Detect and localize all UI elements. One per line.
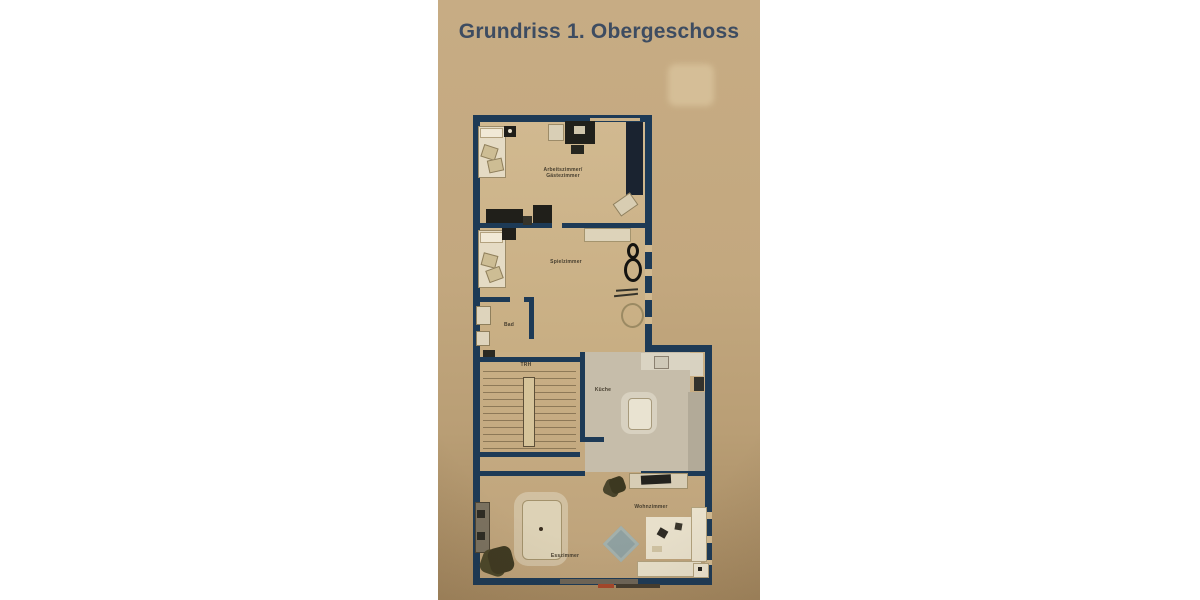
room-label-kueche: Küche <box>595 387 611 393</box>
figure-eight-bottom-ring <box>624 258 642 282</box>
floorplan-photo: Grundriss 1. Obergeschoss <box>438 0 760 600</box>
tv-icon <box>641 474 671 485</box>
cabinet-icon <box>548 124 564 141</box>
bed-pillow-icon <box>480 232 503 243</box>
kitchen-tile-strip <box>688 392 705 472</box>
stair-rail-icon <box>523 377 535 447</box>
plant-icon <box>604 477 626 499</box>
shelf-icon <box>584 228 631 242</box>
bed-pillow-icon <box>480 128 503 138</box>
coffee-table-item-icon <box>652 546 662 552</box>
nightstand-icon <box>502 228 516 240</box>
pencil-icon <box>616 288 638 292</box>
toilet-icon <box>476 331 490 346</box>
room-label-line: Gästezimmer <box>544 173 583 179</box>
sideboard-detail-icon <box>477 532 485 540</box>
kitchen-sink-icon <box>654 356 669 369</box>
room-label-spielzimmer: Spielzimmer <box>550 259 582 265</box>
wall-kitchen-left <box>580 352 585 442</box>
watermark-text <box>616 584 660 588</box>
page-title: Grundriss 1. Obergeschoss <box>438 20 760 44</box>
dresser-icon <box>523 216 532 225</box>
coffee-table-item-icon <box>674 522 682 530</box>
table-centerpiece-icon <box>539 527 543 531</box>
wall-bad-right <box>529 297 534 339</box>
wall-kitchen-stub <box>580 437 604 442</box>
monitor-icon <box>574 126 585 134</box>
room-label-esszimmer: Esszimmer <box>551 553 579 559</box>
kitchen-table-icon <box>628 398 652 430</box>
figure-eight-top-ring <box>627 243 639 259</box>
wall-divider-arbeits-spiel-a <box>480 223 552 228</box>
room-label-arbeitszimmer: Arbeitszimmer/ Gästezimmer <box>544 167 583 179</box>
chimney-block <box>626 122 643 195</box>
window-right-upper <box>645 228 652 340</box>
window-top-wall <box>590 116 640 121</box>
wall-bad-top-a <box>480 297 510 302</box>
armchair-cushion-icon <box>698 567 702 571</box>
watermark-accent <box>598 584 614 588</box>
room-label-bad: Bad <box>504 322 514 328</box>
sideboard-detail-icon <box>477 510 485 518</box>
wall-step <box>645 345 712 352</box>
room-label-trh: TRH <box>521 362 532 368</box>
wall-trh-top <box>480 357 585 362</box>
rug-icon <box>646 517 694 559</box>
wall-trh-bottom <box>480 452 580 457</box>
sofa-icon <box>691 507 707 562</box>
stove-icon <box>694 377 704 391</box>
bath-fixture-icon <box>483 350 495 357</box>
sink-icon <box>476 306 491 325</box>
paper-correction-patch <box>668 64 714 106</box>
page-background: Grundriss 1. Obergeschoss <box>0 0 1200 600</box>
wardrobe-icon <box>533 205 552 223</box>
round-rug-icon <box>621 303 644 328</box>
wall-living-top-a <box>480 471 585 476</box>
pencil-icon <box>614 293 638 297</box>
wardrobe-icon <box>486 209 523 223</box>
fridge-icon <box>690 360 703 376</box>
room-label-wohnzimmer: Wohnzimmer <box>634 504 667 510</box>
figure-eight-icon <box>624 243 643 283</box>
pencil-set-icon <box>614 287 640 298</box>
plant-icon <box>481 547 515 579</box>
lamp-icon <box>508 129 512 133</box>
desk-chair-icon <box>571 145 584 154</box>
